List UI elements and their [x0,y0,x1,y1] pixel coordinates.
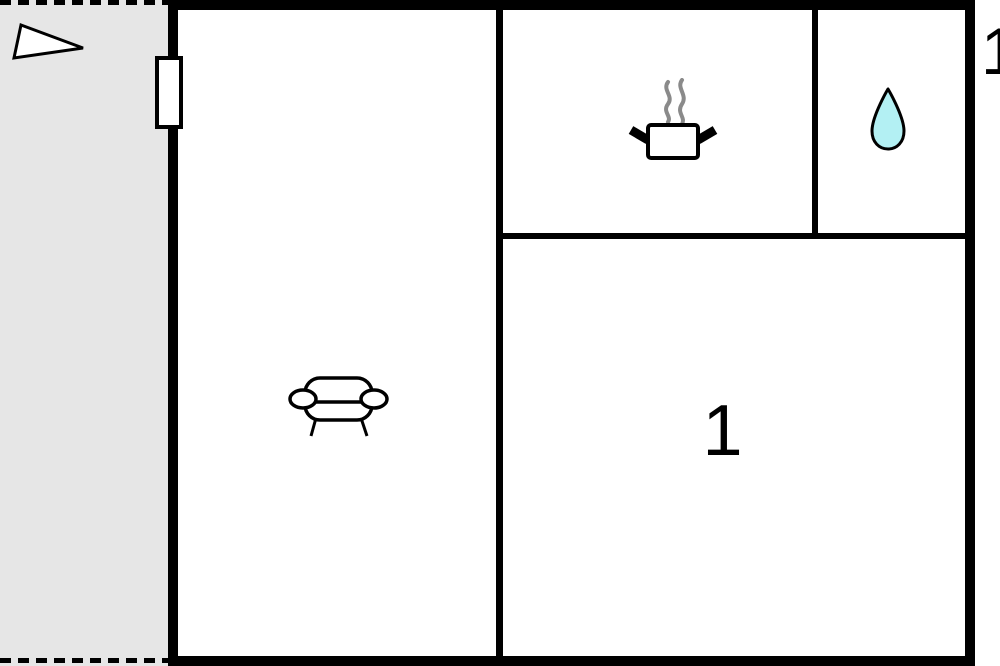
sofa-icon [283,372,395,440]
terrace-boundary-dashed-top [0,0,172,5]
steam-line-icon [680,80,684,124]
wall-living-room-divider [496,10,503,656]
terrace-area [0,0,172,666]
steam-line-icon [666,82,670,122]
north-arrow-icon [8,18,90,64]
wall-kitchen-bathroom-divider [812,10,818,239]
wall-kitchen-bedroom-divider [496,233,965,239]
floor-plan: 1 1 [0,0,1000,666]
water-drop-icon [866,86,910,152]
bedroom-number-label: 1 [650,395,795,467]
cooking-pot-icon [622,78,722,163]
exterior-number-label: 1 [981,18,1000,84]
terrace-boundary-dashed-bottom [0,658,172,663]
living-room-area [178,10,496,656]
door-window-marker [155,56,183,129]
